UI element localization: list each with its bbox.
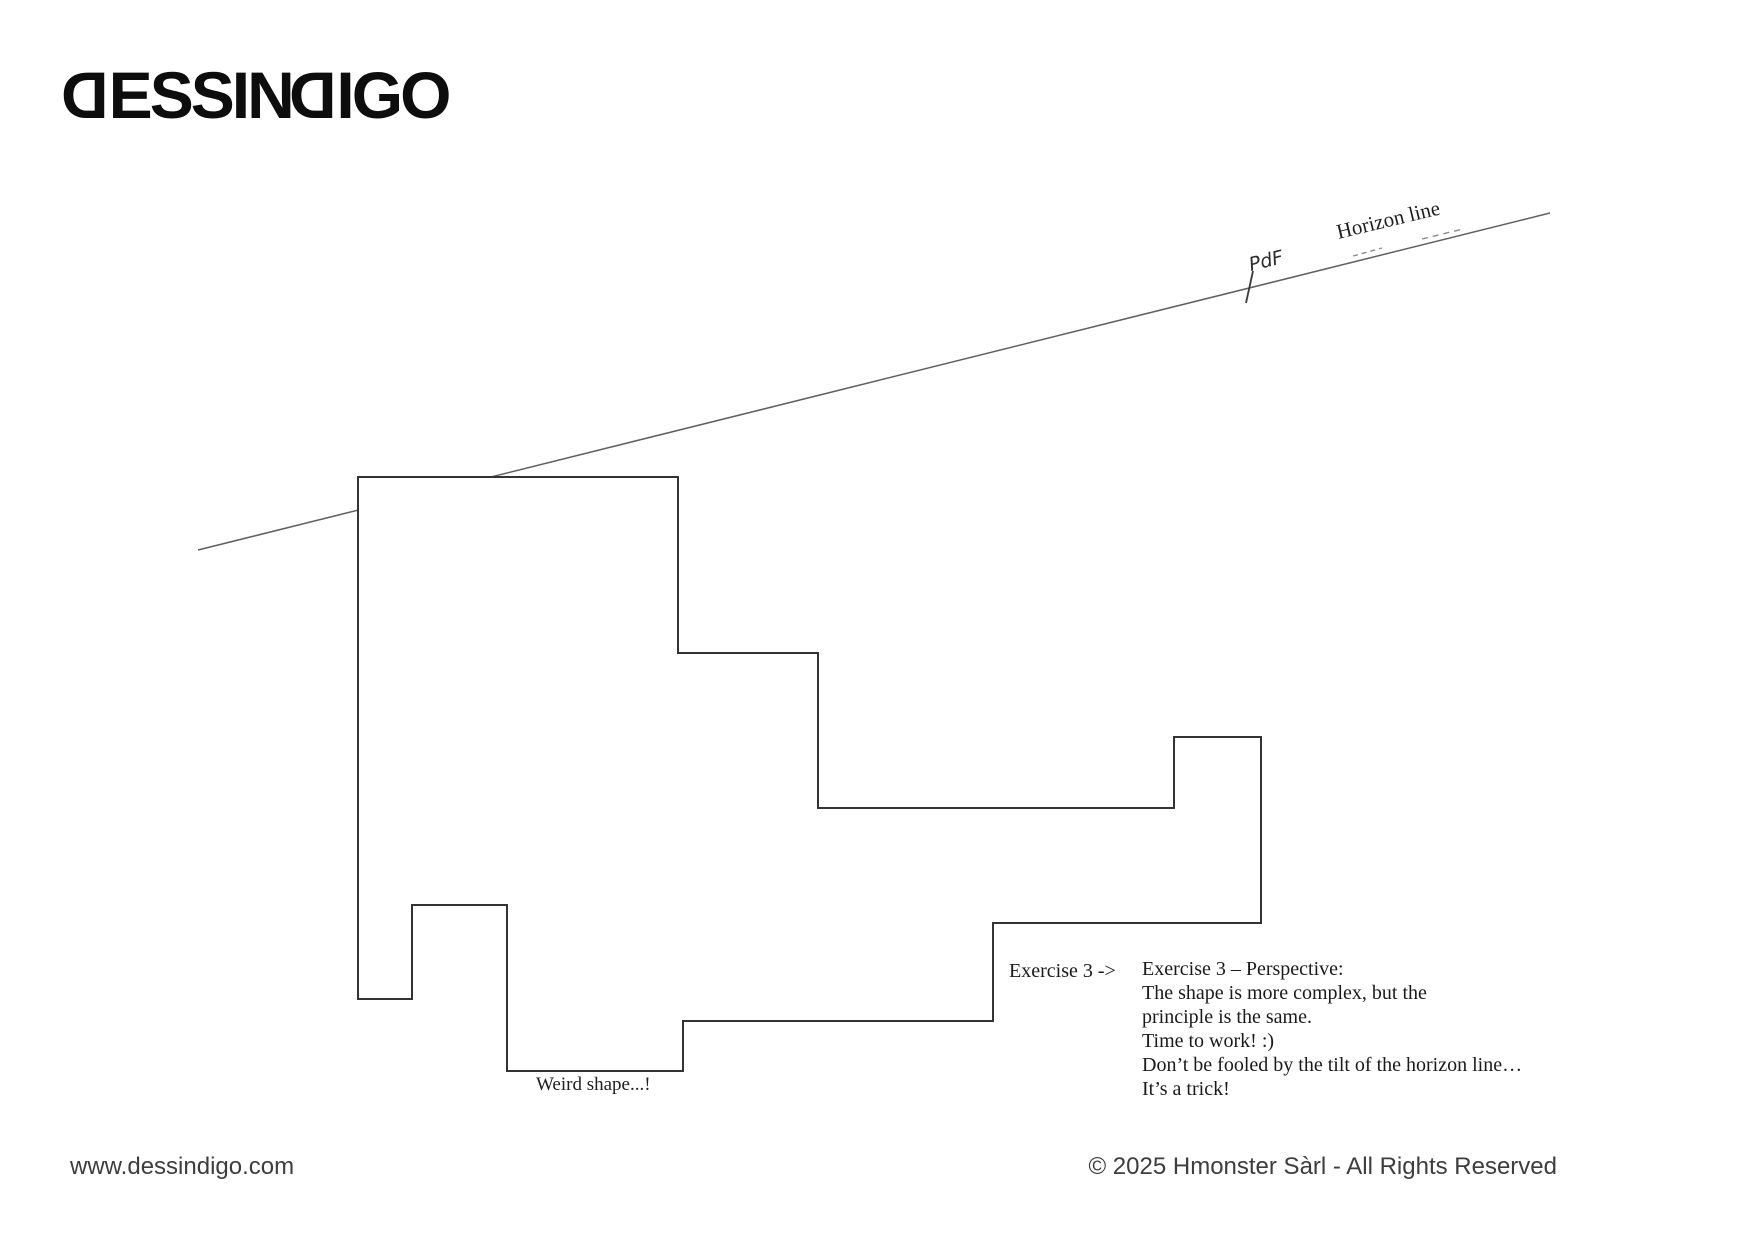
weird-shape-outline bbox=[358, 477, 1261, 1071]
weird-shape-caption: Weird shape...! bbox=[536, 1074, 651, 1096]
worksheet-page: DESSINDIGO PdF Horizon line Weird shape.… bbox=[0, 0, 1754, 1240]
footer-website-link[interactable]: www.dessindigo.com bbox=[70, 1153, 294, 1181]
footer-copyright: © 2025 Hmonster Sàrl - All Rights Reserv… bbox=[1088, 1153, 1557, 1181]
exercise-instructions: Exercise 3 – Perspective: The shape is m… bbox=[1142, 957, 1522, 1101]
sketch-dash-1 bbox=[1353, 248, 1382, 256]
exercise-pointer-label: Exercise 3 -> bbox=[1009, 960, 1116, 983]
sketch-dash-2 bbox=[1422, 229, 1463, 239]
